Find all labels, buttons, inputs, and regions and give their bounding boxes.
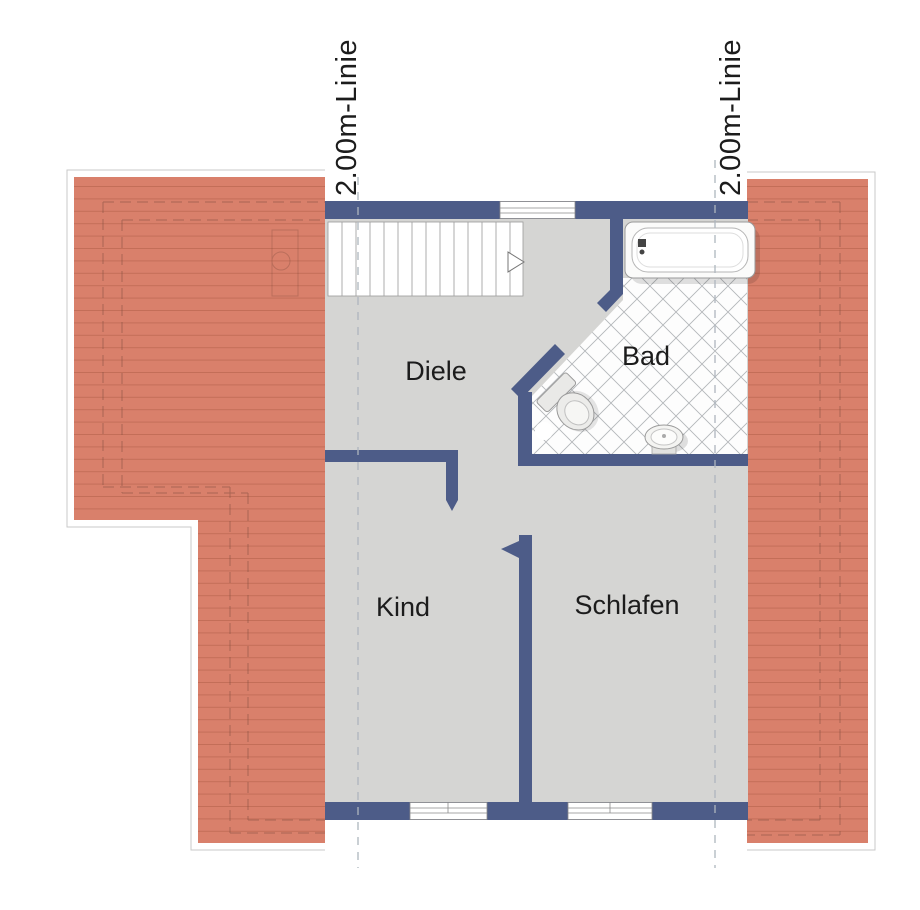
- window-kind: [410, 803, 487, 820]
- window-top: [500, 202, 575, 219]
- wall-kind-schlafen: [519, 535, 532, 820]
- roof-left: [67, 170, 325, 850]
- wall-bad-bottom: [518, 454, 748, 466]
- guide-label-left: 2.00m-Linie: [331, 39, 363, 196]
- bathtub-faucet: [638, 239, 646, 247]
- bathtub-icon: [625, 222, 760, 284]
- floor-plan-page: Diele Bad Kind Schlafen 2.00m-Linie 2.00…: [0, 0, 920, 910]
- roof-left-tiling: [74, 177, 325, 843]
- window-schlafen: [568, 803, 652, 820]
- roof-right: [747, 172, 875, 850]
- room-label-kind: Kind: [376, 592, 430, 622]
- room-label-bad: Bad: [622, 341, 670, 371]
- room-label-diele: Diele: [405, 356, 467, 386]
- guide-label-right: 2.00m-Linie: [715, 39, 747, 196]
- stairs-outline: [328, 222, 523, 296]
- floor-plan: Diele Bad Kind Schlafen 2.00m-Linie 2.00…: [0, 0, 920, 910]
- bathtub-drain: [640, 250, 645, 255]
- bath-wall-pipe-icon: [535, 422, 553, 440]
- wall-bottom-exterior: [325, 802, 748, 820]
- roof-right-tiling: [747, 179, 868, 843]
- room-label-schlafen: Schlafen: [574, 590, 679, 620]
- sink-drain: [662, 434, 666, 438]
